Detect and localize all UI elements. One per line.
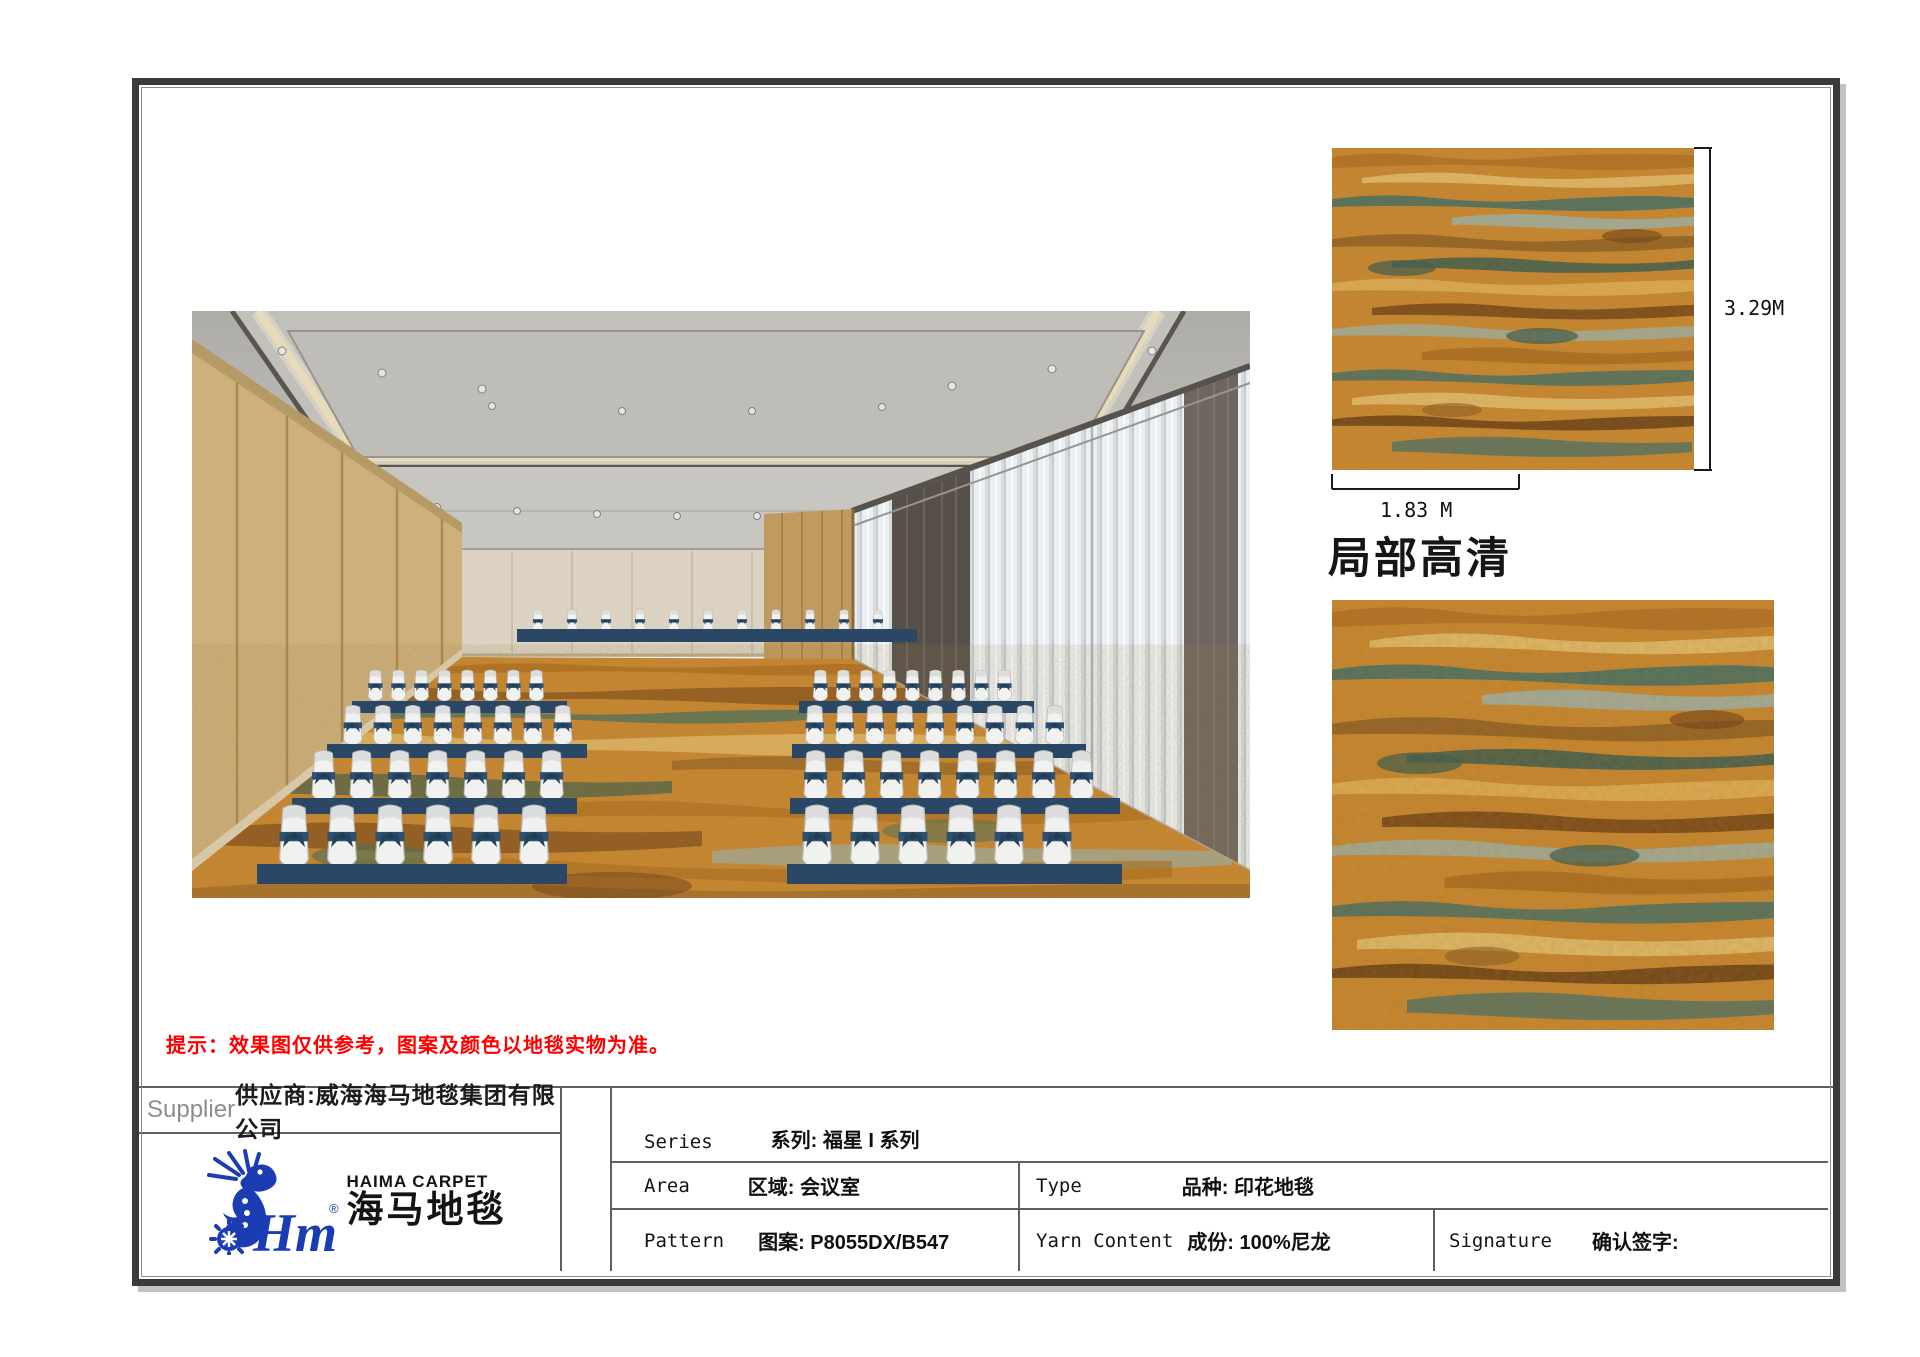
series-label: Series <box>644 1131 713 1153</box>
area-cell: Area 区域: 会议室 <box>610 1163 1020 1210</box>
pattern-label: Pattern <box>644 1230 724 1252</box>
yarn-label: Yarn Content <box>1036 1230 1173 1252</box>
pattern-cell: Pattern 图案: P8055DX/B547 <box>610 1210 1020 1271</box>
pattern-value: 图案: P8055DX/B547 <box>758 1226 949 1255</box>
seahorse-logo-icon: Hm ® <box>193 1149 343 1255</box>
spec-sheet: 3.29M 1.83 M 局部高清 提示：效果图仅供参考，图案及颜色以地毯实物为… <box>132 78 1840 1286</box>
room-render <box>182 311 1250 900</box>
type-label: Type <box>1036 1175 1082 1197</box>
detail-heading: 局部高清 <box>1328 524 1512 586</box>
swatch-height-dimension: 3.29M <box>1724 296 1784 320</box>
series-row: Series 系列: 福星 I 系列 <box>610 1086 1828 1163</box>
signature-cell: Signature 确认签字: <box>1435 1210 1828 1271</box>
supplier-label: Supplier <box>147 1096 235 1124</box>
type-cell: Type 品种: 印花地毯 <box>1020 1163 1828 1210</box>
area-label: Area <box>644 1175 690 1197</box>
yarn-value: 成份: 100%尼龙 <box>1187 1226 1330 1255</box>
registered-mark: ® <box>329 1201 339 1216</box>
yarn-cell: Yarn Content 成份: 100%尼龙 <box>1020 1210 1435 1271</box>
area-value: 区域: 会议室 <box>748 1171 860 1200</box>
series-value: 系列: 福星 I 系列 <box>771 1124 920 1153</box>
signature-label: Signature <box>1449 1230 1552 1252</box>
type-value: 品种: 印花地毯 <box>1182 1171 1314 1200</box>
brand-logo-cell: Hm ® HAIMA CARPET 海马地毯 <box>139 1134 560 1269</box>
page: { "sheet": { "note": "提示：效果图仅供参考，图案及颜色以地… <box>0 0 1920 1357</box>
carpet-swatch <box>1322 148 1706 470</box>
brand-monogram: Hm <box>252 1203 337 1255</box>
carpet-detail-swatch <box>1320 600 1800 1030</box>
supplier-cell: Supplier供应商:威海海马地毯集团有限公司 <box>139 1088 560 1134</box>
brand-name-zh: 海马地毯 <box>347 1191 507 1230</box>
signature-value: 确认签字: <box>1592 1226 1679 1255</box>
disclaimer-note: 提示：效果图仅供参考，图案及颜色以地毯实物为准。 <box>166 1029 670 1058</box>
swatch-width-dimension: 1.83 M <box>1380 498 1452 522</box>
